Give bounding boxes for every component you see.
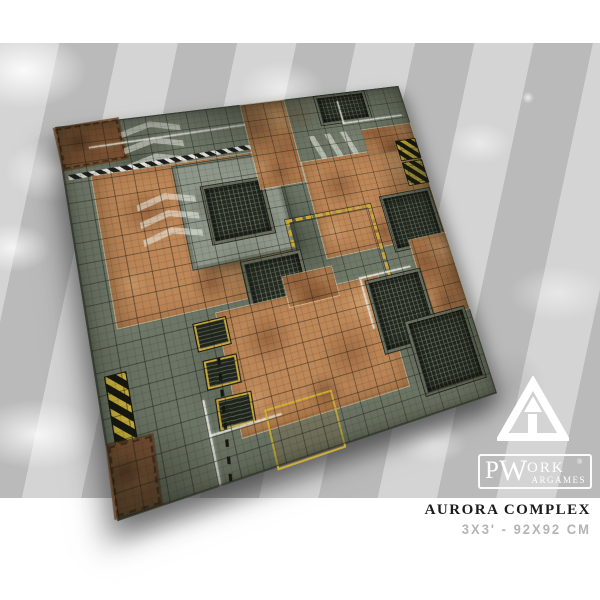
product-size: 3x3' - 92x92 cm	[425, 522, 591, 538]
product-screenshot: P W ORK ® ARGAMES AURORA COMPLEX 3x3' - …	[0, 0, 600, 600]
logo-letter-w: W	[499, 456, 527, 486]
product-title: AURORA COMPLEX	[425, 502, 591, 519]
pwork-wargames-logo: P W ORK ® ARGAMES	[478, 454, 592, 489]
logo-text-argames: ARGAMES	[531, 476, 586, 485]
logo-letter-p: P	[485, 458, 499, 483]
pwork-triangle-logo-icon	[497, 376, 569, 448]
product-caption: AURORA COMPLEX 3x3' - 92x92 cm	[425, 502, 591, 537]
registered-trademark-icon: ®	[577, 459, 582, 466]
logo-text-ork: ORK	[527, 461, 565, 476]
